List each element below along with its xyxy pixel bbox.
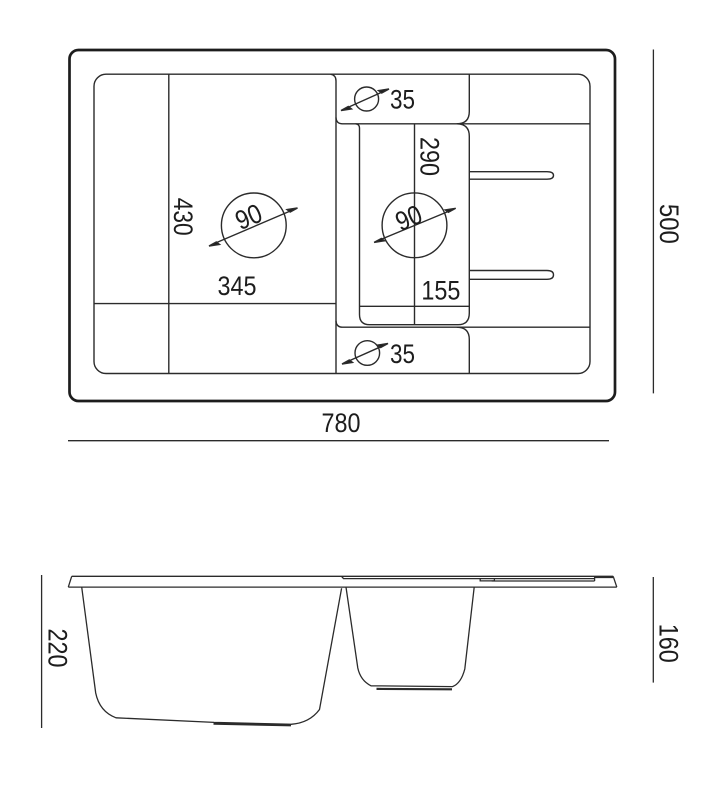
- svg-text:430: 430: [168, 198, 198, 236]
- svg-text:90: 90: [391, 199, 427, 237]
- svg-text:220: 220: [43, 629, 73, 668]
- svg-text:500: 500: [654, 204, 684, 244]
- svg-text:155: 155: [421, 276, 460, 306]
- svg-text:35: 35: [390, 85, 415, 115]
- svg-text:35: 35: [390, 339, 415, 369]
- svg-text:160: 160: [654, 624, 684, 663]
- svg-text:780: 780: [322, 408, 361, 438]
- svg-text:345: 345: [218, 271, 257, 301]
- svg-text:90: 90: [231, 198, 267, 236]
- svg-text:290: 290: [414, 137, 444, 176]
